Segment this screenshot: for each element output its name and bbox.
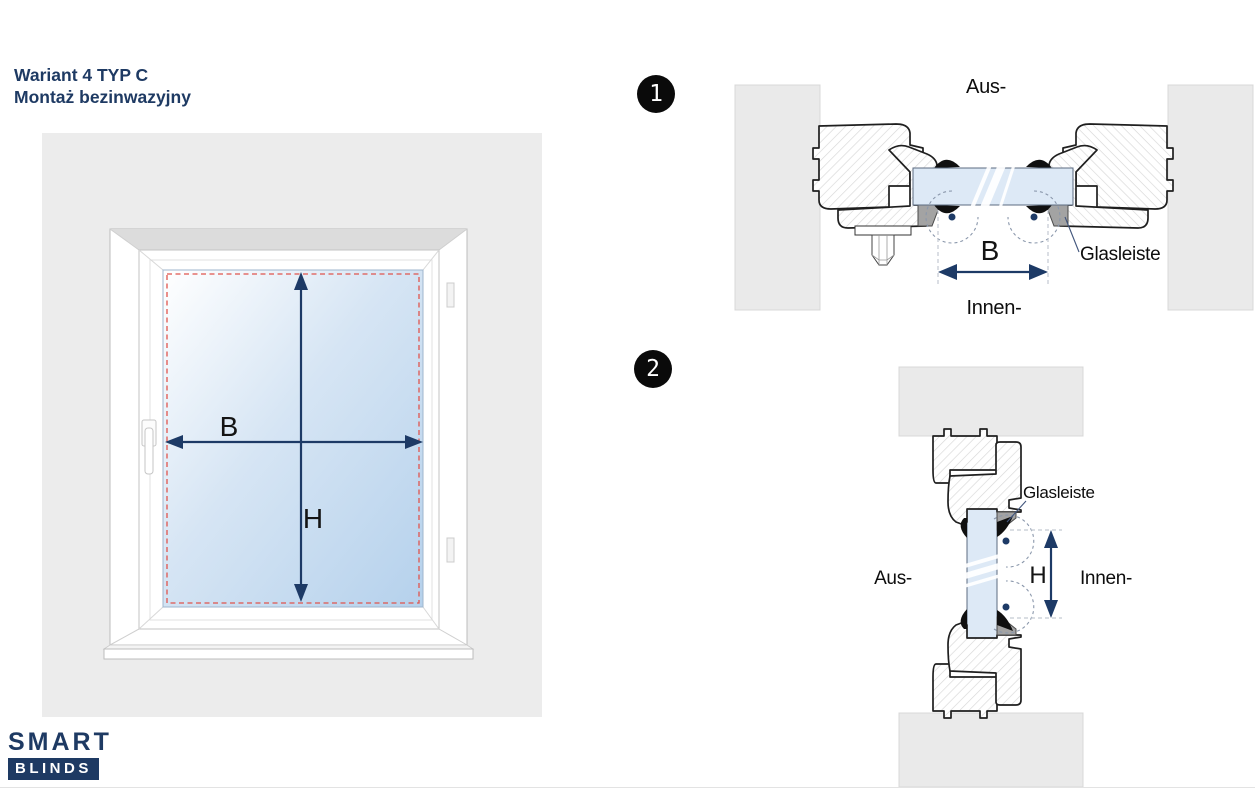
height-dim-label: H	[303, 503, 323, 534]
mounting-subtitle: Montaż bezinwazyjny	[14, 86, 191, 108]
hex-pin	[872, 235, 894, 265]
arrow-up-head	[1044, 530, 1058, 548]
window-sill	[104, 649, 473, 659]
width-dim-label: B	[220, 411, 239, 442]
recess-top-shadow	[110, 229, 467, 250]
variant-title: Wariant 4 TYP C	[14, 64, 191, 86]
wall-block-right	[1168, 85, 1253, 310]
lock-plate	[855, 226, 911, 235]
arrow-right-head	[1029, 264, 1048, 280]
inside-label: Innen-	[1080, 568, 1132, 589]
logo-line-smart: SMART	[8, 729, 112, 756]
outside-label: Aus-	[966, 76, 1006, 98]
wall-block-left	[735, 85, 820, 310]
window-measurement-figure: B H	[42, 133, 542, 717]
outside-label: Aus-	[874, 568, 912, 589]
window-handle-grip	[145, 428, 153, 474]
measurement-instruction-sheet: Wariant 4 TYP C Montaż bezinwazyjny	[0, 0, 1255, 788]
logo-line-blinds: BLINDS	[8, 758, 99, 780]
wall-block-bottom	[899, 713, 1083, 787]
pivot-dot-right	[1031, 214, 1038, 221]
window-sill-top	[104, 645, 473, 649]
pivot-dot-top	[1003, 538, 1010, 545]
glazing-bead-label: Glasleiste	[1080, 244, 1160, 265]
brand-logo: SMART BLINDS	[8, 729, 112, 780]
glazing-bead-label: Glasleiste	[1023, 483, 1095, 502]
wall-block-top	[899, 367, 1083, 436]
arrow-left-head	[938, 264, 957, 280]
step-1-badge: 1	[637, 75, 675, 113]
inside-label: Innen-	[967, 297, 1022, 319]
arrow-down-head	[1044, 600, 1058, 618]
pivot-dot-left	[949, 214, 956, 221]
width-dim-label: B	[981, 235, 1000, 266]
pivot-dot-bottom	[1003, 604, 1010, 611]
horizontal-section-diagram: B Aus- Innen- Glasleiste	[700, 60, 1255, 330]
height-dim-label: H	[1029, 562, 1046, 589]
hinge-top	[447, 283, 454, 307]
step-2-badge: 2	[634, 350, 672, 388]
vertical-section-diagram: H Aus- Innen- Glasleiste	[860, 350, 1255, 787]
hinge-bottom	[447, 538, 454, 562]
page-title: Wariant 4 TYP C Montaż bezinwazyjny	[14, 64, 191, 108]
glass-pane	[163, 270, 423, 607]
